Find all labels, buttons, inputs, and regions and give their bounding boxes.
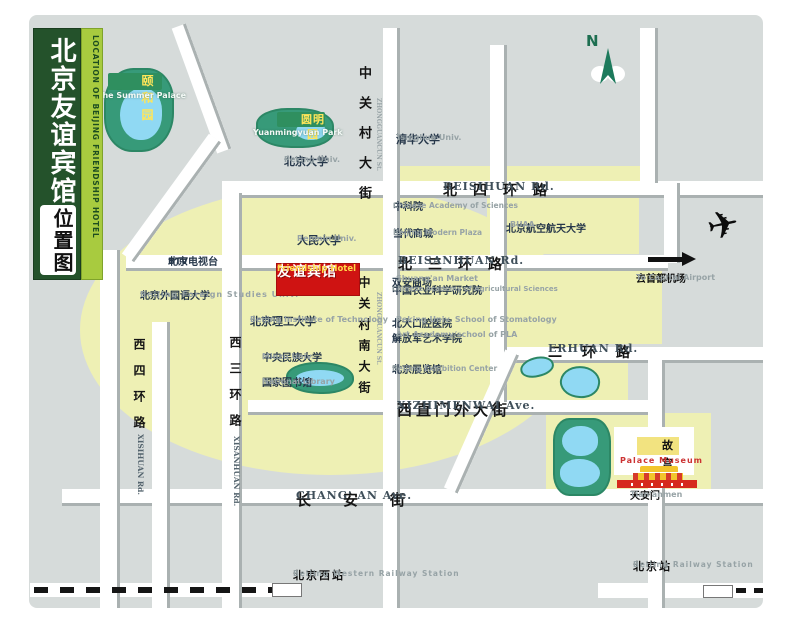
tiananmen-gate-icon xyxy=(614,465,702,491)
beihai-lake-north xyxy=(562,426,598,456)
yuanmingyuan-badge: 圆明园 xyxy=(277,112,325,127)
banner-subtitle-cn: 位置图 xyxy=(48,208,77,274)
road-label-xisihuan-en: XISIHUAN Rd. xyxy=(136,434,145,495)
palace-museum-badge: 故宫 xyxy=(637,437,679,455)
road-label-zhongguancun-north: 中关村大街 xyxy=(354,66,373,216)
summer-palace-badge: 颐和园 xyxy=(108,73,162,90)
banner-title-cn: 北京友谊宾馆 xyxy=(43,37,80,205)
title-banner: 北京友谊宾馆 位置图 xyxy=(33,28,81,280)
airport-arrow-icon xyxy=(648,252,698,268)
west-railway-line xyxy=(34,587,272,593)
title-banner-strip: LOCATION OF BEIJING FRIENDSHIP HOTEL xyxy=(81,28,103,280)
map-page: 颐和园 The Summer Palace 圆明园 Yuanmingyuan P… xyxy=(0,0,789,627)
road-label-zhongguancun-south-en: ZHONGGUANCUN St. xyxy=(375,292,382,365)
main-station-box xyxy=(703,585,733,598)
main-railway-line xyxy=(736,588,763,593)
road-xisihuan xyxy=(100,250,120,608)
road-label-zhongguancun-north-en: ZHONGGUANCUN St. xyxy=(375,98,382,171)
road-diagonal-north xyxy=(172,23,232,153)
road-airport-link xyxy=(664,183,680,263)
banner-subtitle-box: 位置图 xyxy=(40,205,76,275)
banner-title-en: LOCATION OF BEIJING FRIENDSHIP HOTEL xyxy=(91,35,100,239)
road-label-xisanhuan-en: XISANHUAN Rd. xyxy=(232,436,241,506)
road-label-xisihuan-cn: 西四环路 xyxy=(131,338,148,442)
airplane-icon: ✈ xyxy=(693,195,752,254)
beihai-lake-south xyxy=(560,459,600,487)
north-compass-icon: N xyxy=(584,32,628,90)
map-canvas: 颐和园 The Summer Palace 圆明园 Yuanmingyuan P… xyxy=(29,15,763,608)
west-station-box xyxy=(272,583,302,597)
road-west-parallel xyxy=(152,322,170,608)
road-label-xisanhuan-cn: 西三环路 xyxy=(227,336,244,440)
road-northeast xyxy=(640,28,658,183)
friendship-hotel-marker: 友谊宾馆 Friendship Hotel xyxy=(276,263,360,296)
